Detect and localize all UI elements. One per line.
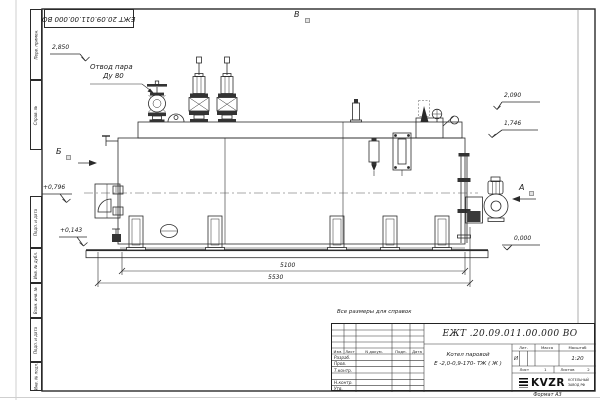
margin-box-inv-dubl: Инв. № дубл. <box>30 248 42 283</box>
tb-product-name-line2: Е -2,0-0,9-170- ТЖ ( Ж ) <box>434 360 502 369</box>
margin-box-podp-data-1: Подп. и дата <box>30 196 42 248</box>
level-2850: 2,850 <box>52 44 69 51</box>
tb-massa-label: Масса <box>535 344 559 351</box>
safety-valve-1 <box>189 57 209 122</box>
view-scale-mark <box>529 191 534 196</box>
tb-col-podp: Подп. <box>392 348 410 354</box>
kvzr-logo-text: KVZR <box>531 377 565 389</box>
tb-row-utv: Утв. <box>332 386 356 392</box>
view-arrow-b <box>78 160 97 166</box>
level-0000: 0,000 <box>514 235 531 242</box>
tb-col-list: Лист <box>344 348 356 354</box>
tb-sheet-num: 1 <box>544 367 546 372</box>
level-1746: 1,746 <box>504 120 521 127</box>
margin-box-label: Инв. № подл. <box>34 363 39 391</box>
tb-col-izm: Изм. <box>332 348 344 354</box>
dim-text-5530: 5530 <box>268 274 283 281</box>
format-label: Формат А3 <box>500 392 595 398</box>
kvzr-logo-sub1: КОТЕЛЬНЫЙ <box>568 378 589 382</box>
dim-text-5100: 5100 <box>280 262 295 269</box>
tb-col-ndoc: N докум. <box>356 348 392 354</box>
level-0796: +0,796 <box>43 184 65 191</box>
tb-product-name-line1: Котел паровой <box>446 351 489 360</box>
tb-sheets-cell: Листов 2 <box>554 366 596 373</box>
margin-box-perv-primen: Перв. примен. <box>30 9 42 80</box>
tb-row-tkontr: Т.контр. <box>332 367 356 373</box>
dimension-5530 <box>95 227 473 287</box>
view-arrow-a <box>512 196 536 202</box>
view-label-a: А <box>519 183 524 192</box>
water-gauge-1 <box>369 138 379 176</box>
level-0143: +0,143 <box>60 227 82 234</box>
view-scale-mark <box>305 18 310 23</box>
tb-product-name: Котел паровой Е -2,0-0,9-170- ТЖ ( Ж ) <box>424 346 512 374</box>
title-block: ЕЖТ .20.09.011.00.000 ВО Изм. Лист N док… <box>331 323 595 391</box>
tb-logo-cell: KVZR КОТЕЛЬНЫЙ ЗАВОД РФ <box>512 373 596 392</box>
tb-lit-value: И <box>512 351 520 366</box>
small-dome <box>168 114 184 122</box>
supports <box>127 216 452 250</box>
downcomer-pipe <box>458 153 471 243</box>
margin-box-podp-data-2: Подп. и дата <box>30 318 42 362</box>
tb-doc-number: ЕЖТ .20.09.011.00.000 ВО <box>424 324 596 344</box>
view-scale-mark <box>66 155 71 160</box>
kvzr-logo-subtext: КОТЕЛЬНЫЙ ЗАВОД РФ <box>568 378 589 387</box>
steam-outlet-valve <box>147 81 167 122</box>
margin-box-label: Перв. примен. <box>34 29 39 59</box>
tb-sheets-label: Листов <box>560 367 574 372</box>
steam-dome-valve <box>416 101 459 139</box>
margin-box-label: Справ. № <box>34 105 39 124</box>
tb-row-razrab: Разраб. <box>332 354 356 360</box>
margin-box-inv-podl: Инв. № подл. <box>30 362 42 391</box>
inverted-doc-number-stamp: ЕЖТ 20.09.011.00.000 ВО <box>44 9 134 28</box>
kvzr-logo-icon <box>519 378 528 388</box>
tb-sheets-num: 2 <box>587 367 589 372</box>
margin-box-label: Взам. инв. № <box>34 287 39 314</box>
tb-masshtab-label: Масштаб <box>559 344 596 351</box>
kvzr-logo-sub2: ЗАВОД РФ <box>568 383 589 387</box>
tb-col-data: Дата <box>410 348 424 354</box>
callout-steam-dn: Ду 80 <box>103 72 124 80</box>
margin-box-label: Подп. и дата <box>34 326 39 353</box>
tb-sheet-cell: Лист 1 <box>512 366 554 373</box>
tb-row-nkontr: Н.контр. <box>332 380 356 386</box>
drum-fitting <box>351 99 362 122</box>
callout-steam-outlet: Отвод пара <box>90 63 133 71</box>
burner <box>466 177 509 223</box>
margin-box-sprav-no: Справ. № <box>30 80 42 150</box>
level-2090: 2,090 <box>504 92 521 99</box>
view-label-v: В <box>294 10 300 19</box>
left-damper-box <box>95 184 123 218</box>
ground-line <box>86 250 488 258</box>
view-label-b: Б <box>56 147 62 156</box>
margin-box-label: Инв. № дубл. <box>34 252 39 279</box>
stamp-number: ЕЖТ 20.09.011.00.000 ВО <box>42 15 135 23</box>
tb-lit-label: Лит. <box>512 344 535 351</box>
drawing-sheet: Перв. примен. Справ. № Подп. и дата Инв.… <box>0 0 600 400</box>
tb-row-prov: Пров. <box>332 361 356 367</box>
safety-valve-2 <box>217 57 237 122</box>
reference-note: Все размеры для справок <box>337 309 412 315</box>
tb-scale-value: 1:20 <box>559 351 596 366</box>
water-gauge-2 <box>393 133 411 176</box>
leader-line <box>90 84 154 94</box>
margin-box-vzam-inv: Взам. инв. № <box>30 283 42 318</box>
tb-sheet-label: Лист <box>519 367 529 372</box>
manhole <box>161 225 178 238</box>
margin-box-label: Подп. и дата <box>34 208 39 235</box>
